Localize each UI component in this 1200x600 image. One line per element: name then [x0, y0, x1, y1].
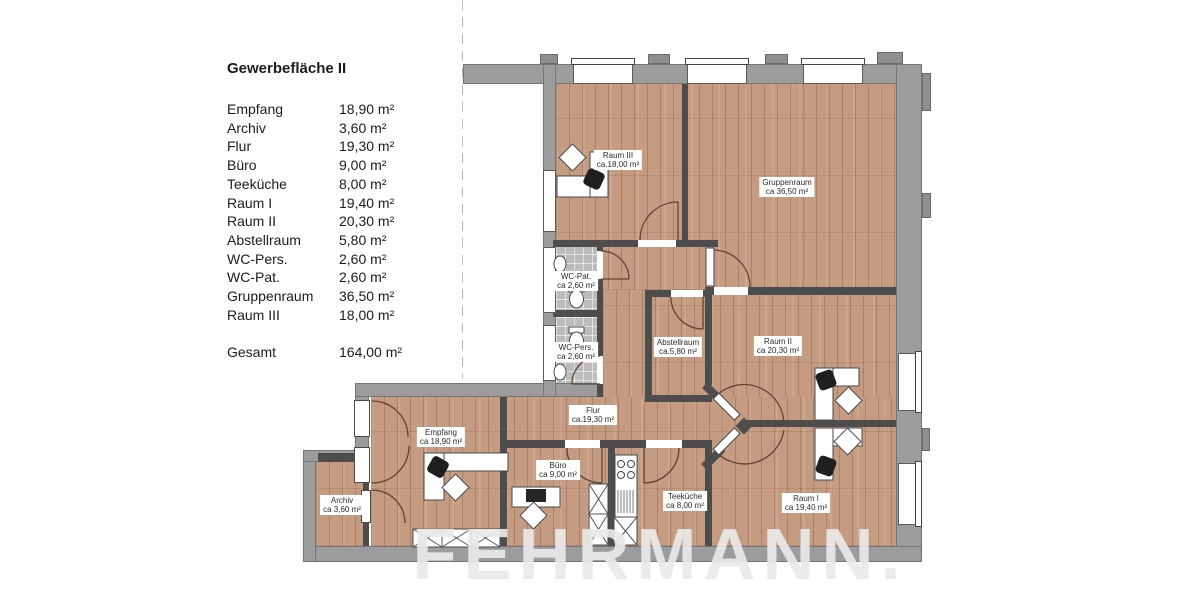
legend-row: Archiv3,60 m²	[227, 119, 437, 138]
outer-wall-void-bottom	[355, 383, 603, 397]
pillar	[922, 193, 931, 218]
entrance-door-leaf-2	[354, 447, 370, 483]
outer-wall-archiv-left	[303, 450, 316, 562]
page-title: Gewerbefläche II	[227, 60, 437, 77]
legend-room-label: Flur	[227, 137, 339, 156]
legend-room-area: 19,40 m²	[339, 194, 394, 213]
legend-row: WC-Pers.2,60 m²	[227, 250, 437, 269]
legend-room-label: Raum I	[227, 194, 339, 213]
legend-room-label: Abstellraum	[227, 231, 339, 250]
pillar	[765, 54, 788, 64]
room-label-raum2: Raum IIca 20,30 m²	[754, 336, 802, 356]
legend-room-label: Raum II	[227, 212, 339, 231]
room-label-wc-pat: WC-Pat.ca 2,60 m²	[554, 271, 598, 291]
window-frame	[685, 58, 749, 65]
pillar	[648, 54, 670, 64]
pillar	[540, 54, 558, 64]
wall-empfang-right	[500, 397, 507, 546]
room-floor-wc-block	[556, 247, 597, 390]
legend-row: Büro9,00 m²	[227, 156, 437, 175]
window-frame	[915, 351, 922, 413]
door-opening-abstellraum	[671, 290, 703, 297]
legend-room-area: 36,50 m²	[339, 287, 394, 306]
legend-room-area: 3,60 m²	[339, 119, 386, 138]
legend-room-area: 9,00 m²	[339, 156, 386, 175]
room-label-abstellraum: Abstellraumca.5,80 m²	[654, 337, 702, 357]
door-opening-gruppenraum	[714, 287, 748, 295]
legend-row: Teeküche8,00 m²	[227, 175, 437, 194]
legend: Gewerbefläche II Empfang18,90 m² Archiv3…	[227, 60, 437, 362]
room-floor-upper-block	[556, 84, 896, 290]
legend-row: Empfang18,90 m²	[227, 100, 437, 119]
legend-room-area: 18,90 m²	[339, 100, 394, 119]
legend-row: Raum II20,30 m²	[227, 212, 437, 231]
legend-room-area: 5,80 m²	[339, 231, 386, 250]
wall-buero-teekueche	[608, 448, 615, 546]
legend-room-label: Empfang	[227, 100, 339, 119]
door-opening-buero	[565, 440, 600, 448]
legend-room-label: Gruppenraum	[227, 287, 339, 306]
room-label-empfang: Empfangca 18,90 m²	[417, 427, 465, 447]
legend-row: Abstellraum5,80 m²	[227, 231, 437, 250]
boundary-dashed-line	[462, 0, 463, 378]
room-label-teekueche: Teekücheca 8,00 m²	[663, 491, 707, 511]
legend-room-label: Büro	[227, 156, 339, 175]
window	[543, 170, 556, 232]
legend-row: Flur19,30 m²	[227, 137, 437, 156]
legend-total-label: Gesamt	[227, 343, 339, 362]
legend-room-area: 19,30 m²	[339, 137, 394, 156]
room-label-raum1: Raum Ica 19,40 m²	[782, 493, 830, 513]
pillar	[877, 52, 903, 64]
window-frame	[571, 58, 635, 65]
room-label-gruppenraum: Gruppenraumca 36,50 m²	[759, 177, 814, 197]
legend-room-area: 2,60 m²	[339, 268, 386, 287]
legend-room-label: Raum III	[227, 306, 339, 325]
legend-room-area: 20,30 m²	[339, 212, 394, 231]
legend-row: Raum I19,40 m²	[227, 194, 437, 213]
room-label-wc-pers: WC-Pers.ca 2,60 m²	[554, 342, 598, 362]
legend-room-area: 2,60 m²	[339, 250, 386, 269]
legend-room-label: WC-Pers.	[227, 250, 339, 269]
legend-rows: Empfang18,90 m² Archiv3,60 m² Flur19,30 …	[227, 100, 437, 362]
wall-raum3-right	[682, 84, 688, 247]
wall-abstellraum-left	[645, 290, 652, 402]
legend-room-area: 18,00 m²	[339, 306, 394, 325]
legend-room-area: 8,00 m²	[339, 175, 386, 194]
room-label-flur: Flurca.19,30 m²	[569, 405, 617, 425]
door-opening-teekueche	[646, 440, 682, 448]
pillar	[922, 428, 930, 451]
wall-raum3-bottom	[553, 240, 718, 247]
legend-row: Raum III18,00 m²	[227, 306, 437, 325]
wall-raum2-left	[705, 287, 712, 385]
wall-raum1-raum2-divider	[745, 420, 896, 427]
outer-wall-bottom	[303, 546, 922, 562]
wall-wc-divider	[553, 310, 603, 317]
door-opening-raum3	[638, 240, 676, 247]
legend-total-row: Gesamt164,00 m²	[227, 343, 437, 362]
room-label-buero: Büroca 9,00 m²	[536, 460, 580, 480]
wall-abstellraum-bottom	[645, 395, 712, 402]
legend-total-area: 164,00 m²	[339, 343, 402, 362]
entrance-door-leaf-1	[354, 400, 370, 437]
pillar	[922, 73, 931, 111]
legend-room-label: WC-Pat.	[227, 268, 339, 287]
floor-plan-page: Gewerbefläche II Empfang18,90 m² Archiv3…	[0, 0, 1200, 600]
window-frame	[915, 461, 922, 527]
legend-room-label: Teeküche	[227, 175, 339, 194]
room-label-archiv: Archivca 3,60 m²	[320, 495, 364, 515]
legend-room-label: Archiv	[227, 119, 339, 138]
legend-row: WC-Pat.2,60 m²	[227, 268, 437, 287]
window-frame	[801, 58, 865, 65]
legend-row: Gruppenraum36,50 m²	[227, 287, 437, 306]
room-label-raum3: Raum IIIca.18,00 m²	[594, 150, 642, 170]
